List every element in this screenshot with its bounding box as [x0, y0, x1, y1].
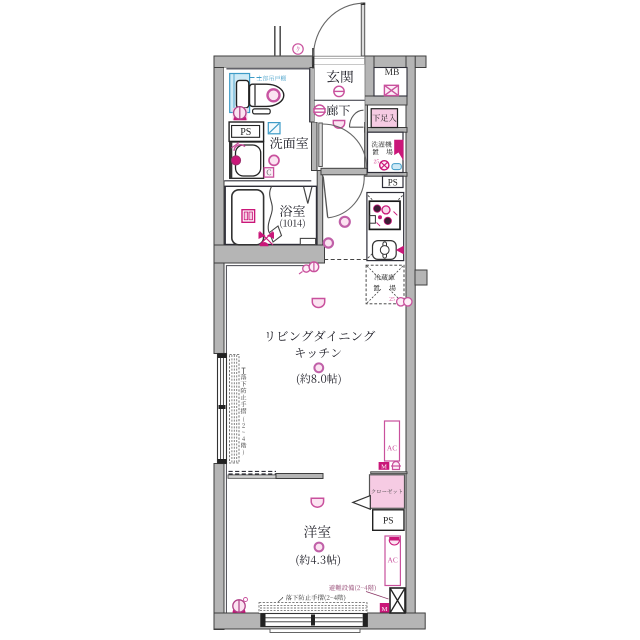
- svg-text:M: M: [381, 464, 387, 471]
- svg-text:AC: AC: [388, 556, 398, 565]
- svg-text:MB: MB: [385, 68, 400, 78]
- svg-text:M: M: [382, 606, 388, 613]
- svg-text:AC: AC: [387, 444, 397, 453]
- svg-text:PS: PS: [383, 517, 394, 527]
- svg-text:PS: PS: [388, 177, 398, 187]
- svg-text:PS: PS: [240, 127, 251, 138]
